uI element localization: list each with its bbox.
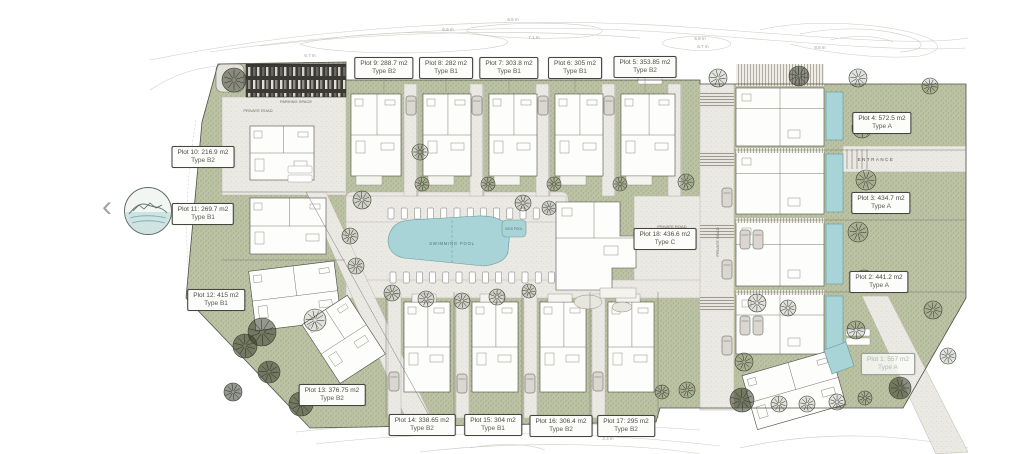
swimming-pool-label: SWIMMING POOL [429, 241, 475, 246]
pool-shape [826, 154, 843, 212]
setback-chip [288, 175, 312, 182]
plot-area-text: Plot 3: 434.7 m2 [857, 195, 904, 203]
car-icon [722, 188, 732, 207]
tree-icon [222, 68, 246, 92]
plot-area-text: Plot 16: 306.4 m2 [536, 418, 587, 426]
contour-elevation-label: 6.7 m [304, 53, 316, 58]
car-icon [389, 372, 399, 391]
plot-label-18[interactable]: Plot 18: 436.6 m2Type C [634, 228, 697, 250]
plot-label-5[interactable]: Plot 5: 353.85 m2Type B2 [614, 56, 677, 78]
tree-icon [489, 289, 505, 305]
crosswalk [700, 152, 734, 168]
contour-elevation-label: 6.5 m [507, 17, 519, 22]
contour-line [760, 23, 937, 57]
plot-label-4[interactable]: Plot 4: 572.5 m2Type A [852, 112, 911, 134]
plot-type-text: Type B1 [485, 68, 532, 76]
plot-type-text: Type B2 [395, 425, 450, 433]
contour-line [830, 36, 893, 42]
tree-icon [224, 383, 242, 401]
tree-icon [856, 170, 876, 190]
car-icon [722, 260, 732, 279]
plot-label-2[interactable]: Plot 2: 441.2 m2Type A [849, 271, 908, 293]
road-surface [592, 294, 605, 418]
plot-type-text: Type B1 [178, 214, 228, 222]
tree-icon [799, 396, 815, 412]
plot-type-text: Type A [857, 203, 904, 211]
plot-type-text: Type B1 [470, 425, 516, 433]
tree-icon [304, 309, 326, 331]
deck-strip [736, 218, 824, 223]
car-icon [525, 374, 535, 393]
plot-label-3[interactable]: Plot 3: 434.7 m2Type A [851, 192, 910, 214]
plot-area-text: Plot 2: 441.2 m2 [855, 274, 902, 282]
contour-elevation-label: 6.8 m [694, 36, 706, 41]
plot-area-text: Plot 1: 557 m2 [867, 356, 909, 364]
tree-icon [735, 353, 753, 371]
tree-icon [342, 228, 358, 244]
road-surface [524, 294, 537, 418]
tree-icon [233, 334, 257, 358]
car-icon [740, 230, 750, 249]
plot-label-17[interactable]: Plot 17: 295 m2Type B2 [597, 415, 655, 437]
plot-label-10[interactable]: Plot 10: 216.9 m2Type B2 [172, 146, 235, 168]
tree-icon [515, 195, 531, 211]
plot-type-text: Type B2 [620, 67, 671, 75]
plot-label-8[interactable]: Plot 8: 282 m2Type B1 [419, 57, 473, 79]
tree-icon [889, 377, 911, 399]
tree-icon [418, 291, 434, 307]
plot-area-text: Plot 17: 295 m2 [603, 418, 649, 426]
tree-icon [258, 361, 280, 383]
contour-elevation-label: 6.7 m [697, 44, 709, 49]
plot-area-text: Plot 11: 269.7 m2 [178, 206, 228, 214]
car-icon [406, 96, 416, 115]
crosswalk [700, 92, 734, 108]
tree-icon [348, 258, 364, 274]
car-icon [538, 96, 548, 115]
road-surface [388, 294, 401, 418]
car-icon [457, 374, 467, 393]
plot-label-15[interactable]: Plot 15: 304 m2Type B1 [464, 414, 522, 436]
masterplan-viewer: ‹ [0, 0, 1024, 454]
previous-view-thumbnail[interactable] [124, 187, 172, 235]
tree-icon [924, 301, 942, 319]
setback-chip [638, 77, 662, 84]
tree-icon [847, 321, 865, 339]
plot-type-text: Type A [855, 282, 902, 290]
plot-label-13[interactable]: Plot 13: 376.75 m2Type B2 [299, 384, 366, 406]
plot-label-14[interactable]: Plot 14: 338.65 m2Type B2 [389, 414, 456, 436]
car-icon [593, 372, 603, 391]
tree-icon [922, 78, 938, 94]
private-road-label-top: PRIVATE ROAD [243, 108, 272, 113]
road-surface [456, 294, 469, 418]
plot-area-text: Plot 12: 415 m2 [193, 292, 239, 300]
deck-strip [736, 290, 824, 295]
car-icon [753, 230, 763, 249]
plot-type-text: Type A [867, 364, 909, 372]
plot-area-text: Plot 13: 376.75 m2 [305, 387, 360, 395]
plot-type-text: Type B1 [425, 68, 467, 76]
contour-line [300, 32, 508, 52]
plot-type-text: Type B2 [360, 68, 407, 76]
tree-icon [940, 348, 956, 364]
crosswalk [700, 296, 734, 312]
plot-area-text: Plot 18: 436.6 m2 [640, 231, 691, 239]
car-icon [753, 316, 763, 335]
pool-shape [826, 224, 843, 284]
tree-icon [542, 201, 556, 215]
parking-area [246, 64, 346, 97]
tree-icon [848, 222, 868, 242]
plot-type-text: Type B2 [305, 395, 360, 403]
plot-area-text: Plot 9: 288.7 m2 [360, 60, 407, 68]
plot-type-text: Type A [858, 123, 905, 131]
plot-area-text: Plot 7: 303.8 m2 [485, 60, 532, 68]
contour-elevation-label: 6.9 m [442, 27, 454, 32]
tree-icon [655, 385, 669, 399]
plot-area-text: Plot 14: 338.65 m2 [395, 417, 450, 425]
tree-icon [412, 144, 428, 160]
plot-label-16[interactable]: Plot 16: 306.4 m2Type B2 [530, 415, 593, 437]
kids-pool-label: KIDS POOL [505, 227, 522, 231]
plot-label-1[interactable]: Plot 1: 557 m2Type A [861, 353, 915, 375]
car-icon [722, 336, 732, 355]
private-road-label-right: PRIVATE ROAD [715, 227, 720, 256]
tree-icon [678, 174, 694, 190]
plot-area-text: Plot 4: 572.5 m2 [858, 115, 905, 123]
car-icon [472, 96, 482, 115]
contour-line [150, 22, 968, 60]
tree-icon [679, 382, 695, 398]
plot-type-text: Type B1 [554, 68, 596, 76]
back-chevron-icon[interactable]: ‹ [102, 192, 112, 222]
contour-line [420, 445, 700, 454]
tree-icon [384, 285, 400, 301]
plot-area-text: Plot 6: 305 m2 [554, 60, 596, 68]
plot-label-7[interactable]: Plot 7: 303.8 m2Type B1 [479, 57, 538, 79]
plot-label-6[interactable]: Plot 6: 305 m2Type B1 [548, 57, 602, 79]
plot-area-text: Plot 5: 353.85 m2 [620, 59, 671, 67]
tree-icon [858, 391, 872, 405]
plot-type-text: Type C [640, 239, 691, 247]
plot-area-text: Plot 10: 216.9 m2 [178, 149, 229, 157]
contour-elevation-label: 8.6 m [814, 45, 826, 50]
contour-line [210, 28, 966, 52]
tree-icon [789, 66, 809, 86]
deck-strip [736, 148, 824, 153]
plot-type-text: Type B1 [193, 300, 239, 308]
tree-icon [353, 191, 371, 209]
tree-icon [522, 284, 536, 298]
tree-icon [748, 294, 766, 312]
tree-icon [454, 293, 470, 309]
plot-area-text: Plot 15: 304 m2 [470, 417, 516, 425]
plot-type-text: Type B2 [603, 426, 649, 434]
contour-elevation-label: 7.1 m [528, 35, 540, 40]
pool-shape [826, 92, 843, 140]
entrance-label: ENTRANCE [858, 157, 895, 162]
plot-label-12[interactable]: Plot 12: 415 m2Type B1 [187, 289, 245, 311]
plot-label-11[interactable]: Plot 11: 269.7 m2Type B1 [172, 203, 234, 225]
plot-label-9[interactable]: Plot 9: 288.7 m2Type B2 [354, 57, 413, 79]
car-icon [740, 316, 750, 335]
plot-type-text: Type B2 [178, 157, 229, 165]
tree-icon [771, 396, 787, 412]
plot-type-text: Type B2 [536, 426, 587, 434]
plot-area-text: Plot 8: 282 m2 [425, 60, 467, 68]
deck-strip [736, 64, 824, 86]
thumbnail-sketch-icon [125, 188, 171, 234]
tree-icon [780, 300, 796, 316]
car-icon [604, 96, 614, 115]
setback-chip [288, 166, 312, 173]
parking-space-label: PARKING SPACE [280, 99, 312, 104]
